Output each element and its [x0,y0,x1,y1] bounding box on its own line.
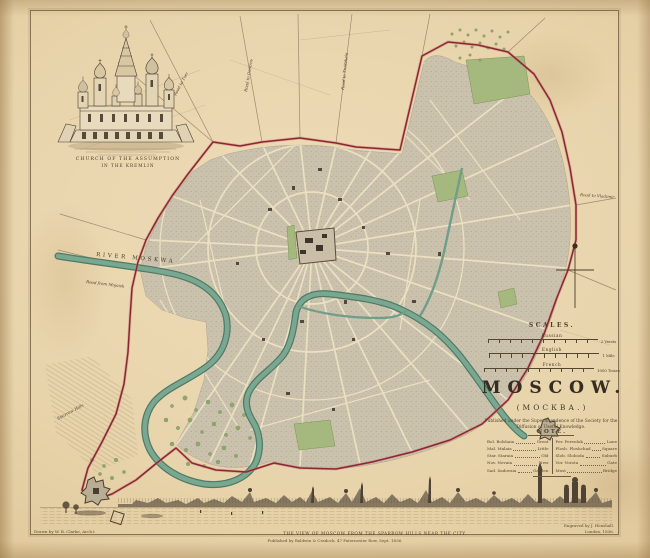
note-meaning: New [539,459,549,466]
scale-label: English [480,347,624,352]
note-end-rule [533,476,571,477]
publisher-imprint: Published by Baldwin & Cradock, 47 Pater… [230,538,440,543]
note-meaning: Gate [607,459,617,466]
scale-end-label: 1000 Toises [597,368,620,373]
vignette-caption: CHURCH OF THE ASSUMPTION IN THE KREMLIN [58,157,198,168]
map-title: MOSCOW. [451,378,650,398]
scale-bar-english: English 1 Mile [480,347,624,358]
note-abbr: Slob. Sloboda [556,452,585,459]
kremlin [296,228,336,264]
scale-label: Russian [480,333,624,338]
map-subtitle-cyrillic: (МОСКВА.) [451,403,650,412]
note-meaning: Great [537,438,549,445]
note-abbr: Star. Staraia [487,452,513,459]
scales-block: SCALES. Russian 2 Versts English 1 Mile … [480,322,624,373]
note-abbr: Nov. Novaia [487,459,512,466]
note-meaning: Little [537,445,548,452]
scale-ticks [489,353,599,358]
scales-header: SCALES. [480,322,624,329]
note-header: NOTE. [484,429,620,435]
note-block: NOTE. Bol. BolshaiaGreat Mal. MalaiaLitt… [484,429,620,477]
note-meaning: Garden [533,467,548,474]
note-meaning: Bridge [603,467,617,474]
note-abbr: Sad. Sadovaia [487,467,516,474]
note-meaning: Old [541,452,548,459]
note-column-left: Bol. BolshaiaGreat Mal. MalaiaLittle Sta… [484,438,552,474]
vignette-caption-line2: IN THE KREMLIN [58,163,198,168]
scale-bar-russian: Russian 2 Versts [480,333,624,344]
title-block: MOSCOW. (МОСКВА.) Published under the Su… [451,378,650,436]
note-abbr: Vor. Vorota [556,459,579,466]
scale-ticks [484,368,594,373]
scale-ticks [488,339,598,344]
note-abbr: Plosh. Ploshchad [556,445,591,452]
vignette-caption-line1: CHURCH OF THE ASSUMPTION [58,157,198,162]
scale-end-label: 1 Mile [602,353,614,358]
note-meaning: Square [602,445,617,452]
label-road-tver: Road to Tver [172,70,190,97]
vignette-cathedral [58,25,194,155]
note-table: Bol. BolshaiaGreat Mal. MalaiaLittle Sta… [484,437,620,474]
label-road-vladimir: Road to Vladimir [579,192,616,200]
note-abbr: Bol. Bolshaia [487,438,514,445]
label-road-troitsa: Road to Troitzkaia [340,52,349,91]
credit-engraved-line2: London, 1836. [472,529,614,535]
note-abbr: Per. Pereulok [556,438,583,445]
credit-drawn-by: Drawn by W. B. Clarke, Arch.t [34,529,95,534]
note-abbr: Mal. Malaia [487,445,512,452]
scale-label: French [480,362,624,367]
credit-engraved-by: Engraved by J. Henshall. London, 1836. [472,523,614,535]
scale-bar-french: French 1000 Toises [480,362,624,373]
note-abbr: Most [556,467,566,474]
note-meaning: Lane [607,438,617,445]
note-meaning: Suburb [602,452,617,459]
note-column-right: Per. PereulokLane Plosh. PloshchadSquare… [552,438,621,474]
label-road-mojaisk: Road from Mojaisk [85,279,125,289]
scale-end-label: 2 Versts [601,339,617,344]
